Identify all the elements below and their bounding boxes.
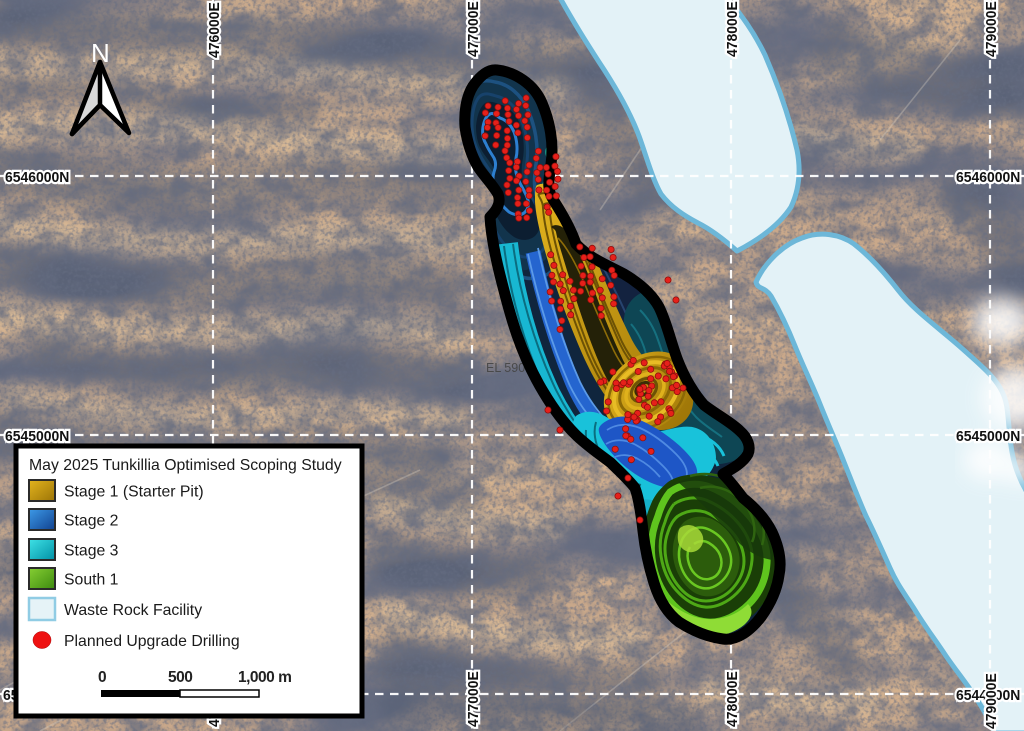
svg-text:6546000N: 6546000N (956, 170, 1020, 187)
svg-text:476000E: 476000E (207, 2, 224, 58)
svg-text:6545000N: 6545000N (5, 429, 69, 446)
svg-text:South 1: South 1 (64, 572, 119, 589)
svg-text:May 2025 Tunkillia Optimised S: May 2025 Tunkillia Optimised Scoping Stu… (29, 457, 342, 474)
svg-text:500: 500 (168, 669, 192, 686)
svg-text:Planned Upgrade Drilling: Planned Upgrade Drilling (64, 633, 240, 650)
svg-text:479000E: 479000E (984, 673, 1001, 729)
svg-text:478000E: 478000E (725, 671, 742, 727)
svg-text:Waste Rock Facility: Waste Rock Facility (64, 602, 202, 619)
svg-text:Stage 2: Stage 2 (64, 513, 118, 530)
svg-text:479000E: 479000E (984, 1, 1001, 57)
svg-text:477000E: 477000E (466, 671, 483, 727)
svg-text:6546000N: 6546000N (5, 170, 69, 187)
svg-text:0: 0 (98, 669, 106, 686)
svg-text:Stage 3: Stage 3 (64, 543, 119, 560)
svg-text:477000E: 477000E (466, 1, 483, 57)
svg-text:6545000N: 6545000N (956, 429, 1020, 446)
svg-text:Stage 1 (Starter Pit): Stage 1 (Starter Pit) (64, 484, 204, 501)
svg-text:1,000 m: 1,000 m (238, 669, 291, 686)
svg-text:478000E: 478000E (725, 1, 742, 57)
